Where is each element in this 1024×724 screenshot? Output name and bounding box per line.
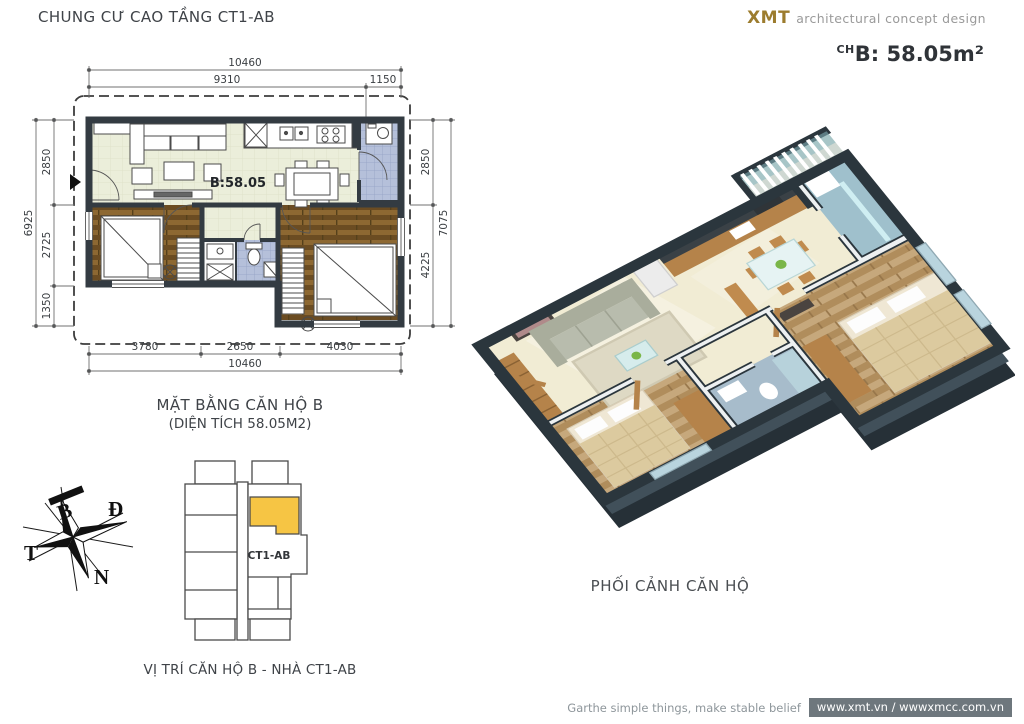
svg-text:4030: 4030 (327, 341, 354, 353)
unit-area-value: B: 58.05m² (855, 42, 984, 66)
brand-logo: XMT (747, 8, 790, 28)
svg-text:10460: 10460 (228, 57, 261, 69)
footer-websites: www.xmt.vn / wwwxmcc.com.vn (809, 698, 1012, 717)
svg-text:3780: 3780 (132, 341, 159, 353)
entrance-arrow-icon (70, 174, 81, 190)
key-plan-building-label: CT1-AB (248, 550, 291, 562)
washing-machine (366, 122, 392, 144)
wardrobe-2 (282, 248, 304, 314)
compass-rose: B Đ T N (12, 468, 142, 598)
floor-plan-2d: 10460 9310 1150 6925 2850 2725 1350 2850… (14, 50, 466, 394)
svg-text:1350: 1350 (41, 293, 53, 320)
key-plan-caption: VỊ TRÍ CĂN HỘ B - NHÀ CT1-AB (100, 662, 400, 678)
footer-slogan: Garthe simple things, make stable belief (567, 701, 801, 715)
floor-plan-caption-line1: MẶT BẰNG CĂN HỘ B (14, 396, 466, 414)
svg-text:2725: 2725 (41, 232, 53, 259)
room-area-label: B:58.05 (210, 176, 266, 191)
svg-text:2850: 2850 (41, 149, 53, 176)
key-plan: CT1-AB (170, 452, 340, 664)
compass-letter-west: T (24, 541, 38, 565)
page: CHUNG CƯ CAO TẦNG CT1-AB XMTarchitectura… (0, 0, 1024, 724)
unit-area-label: CHB: 58.05m² (836, 42, 984, 66)
wardrobe-1 (177, 238, 201, 284)
svg-text:4225: 4225 (420, 252, 432, 279)
render-apartment (457, 124, 1008, 537)
coffee-table (164, 162, 194, 180)
dining-table (275, 161, 349, 207)
key-plan-connector (237, 482, 248, 640)
svg-text:6925: 6925 (23, 210, 35, 237)
unit-area-prefix: CH (836, 43, 854, 56)
svg-text:2650: 2650 (227, 341, 254, 353)
floor-plan-caption-line2: (DIỆN TÍCH 58.05M2) (14, 416, 466, 432)
compass-letter-east: Đ (108, 497, 123, 521)
page-title: CHUNG CƯ CAO TẦNG CT1-AB (38, 8, 275, 26)
svg-text:9310: 9310 (214, 74, 241, 86)
bed-1 (101, 216, 163, 280)
compass-letter-south: N (94, 565, 109, 589)
brand-tagline: architectural concept design (796, 11, 986, 26)
render-caption: PHỐI CẢNH CĂN HỘ (450, 577, 890, 595)
footer: Garthe simple things, make stable belief… (567, 698, 1012, 717)
tv-cabinet (134, 190, 212, 199)
floor-plan-caption: MẶT BẰNG CĂN HỘ B (DIỆN TÍCH 58.05M2) (14, 396, 466, 432)
svg-text:7075: 7075 (438, 210, 450, 237)
bed-2 (314, 244, 396, 316)
svg-text:10460: 10460 (228, 358, 261, 370)
kitchen-counter (244, 122, 358, 148)
key-plan-left-tower (185, 461, 237, 640)
compass-letter-north: B (54, 498, 75, 525)
brand-logo-block: XMTarchitectural concept design (747, 8, 986, 28)
svg-text:1150: 1150 (370, 74, 397, 86)
render-3d (450, 88, 1015, 570)
svg-text:2850: 2850 (420, 149, 432, 176)
